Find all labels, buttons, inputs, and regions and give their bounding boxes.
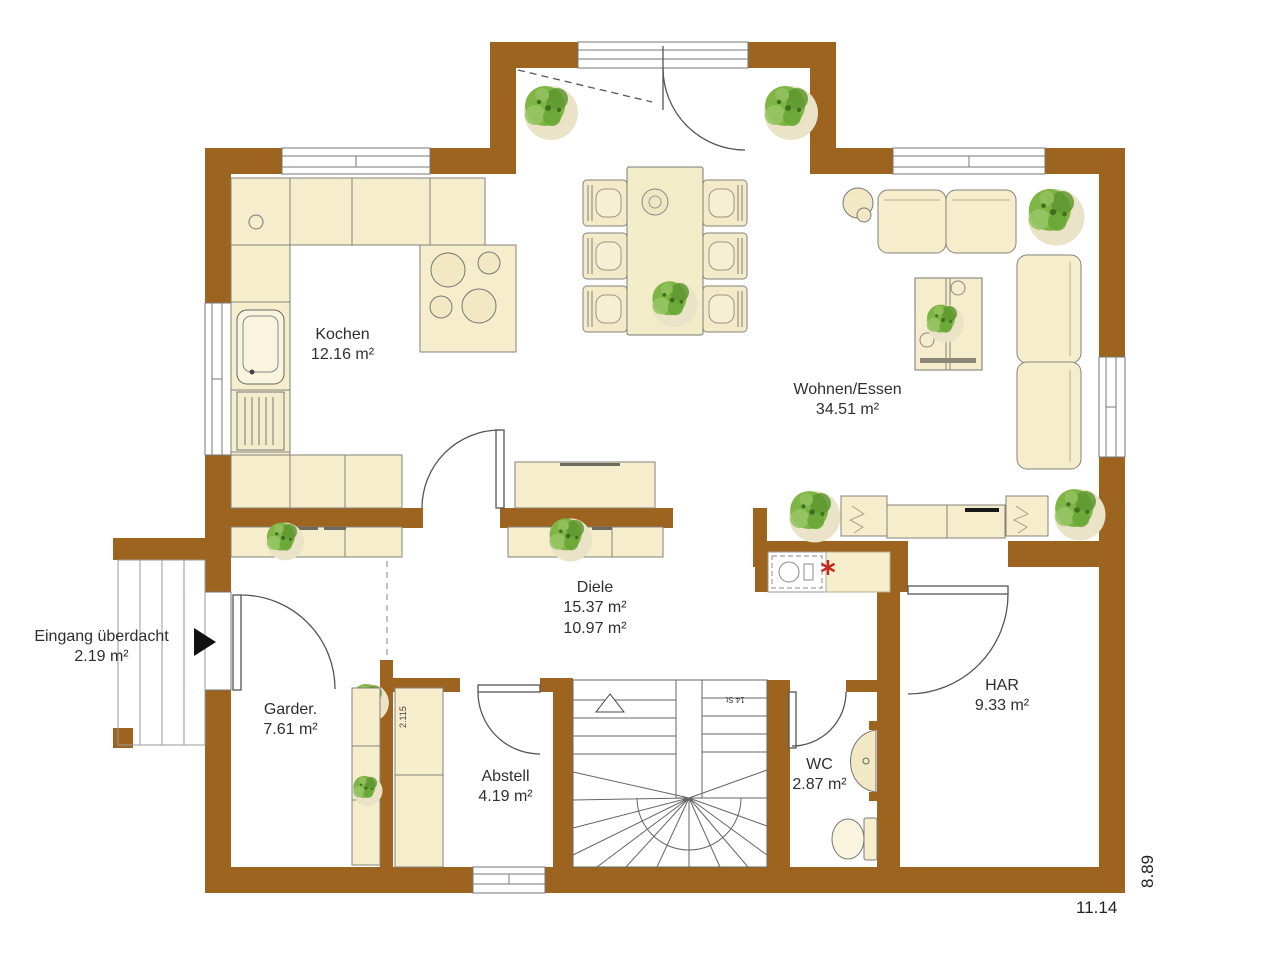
room-area-2: 10.97 m²	[540, 619, 650, 639]
window-bottom	[473, 867, 545, 893]
plant-icon	[926, 305, 964, 343]
plant-icon	[652, 281, 698, 327]
plant-icon	[1054, 489, 1105, 540]
tv-icon	[965, 508, 999, 512]
bowl-icon	[642, 189, 668, 215]
abstell-door	[478, 685, 540, 754]
room-area: 7.61 m²	[238, 720, 343, 740]
window-top-right	[893, 148, 1045, 174]
room-label-garderobe: Garder. 7.61 m²	[238, 700, 343, 741]
floorplan-page: Kochen 12.16 m² Wohnen/Essen 34.51 m² Di…	[0, 0, 1280, 960]
room-name: Kochen	[280, 325, 405, 345]
room-label-abstell: Abstell 4.19 m²	[448, 767, 563, 808]
room-name: Abstell	[448, 767, 563, 787]
room-label-eingang: Eingang überdacht 2.19 m²	[14, 627, 189, 668]
sofa-vertical	[1017, 255, 1081, 469]
utility-niche	[768, 552, 890, 592]
plant-icon	[353, 776, 383, 806]
room-name: Garder.	[238, 700, 343, 720]
room-label-kochen: Kochen 12.16 m²	[280, 325, 405, 366]
hall-sideboard	[231, 527, 402, 557]
kitchen-door	[422, 430, 504, 508]
window-right	[1099, 357, 1125, 457]
room-name: HAR	[952, 676, 1052, 696]
plant-icon	[549, 518, 592, 561]
dimension-width: 11.14	[1076, 898, 1117, 918]
dimension-depth: 8.89	[1138, 855, 1158, 888]
tv-lowboard	[841, 496, 1048, 538]
window-left	[205, 303, 231, 455]
entrance-door	[205, 592, 335, 690]
plant-icon	[266, 523, 304, 561]
room-area: 4.19 m²	[448, 787, 563, 807]
room-label-diele: Diele 15.37 m² 10.97 m²	[540, 578, 650, 639]
dish-drainer-icon	[237, 392, 284, 450]
plant-icon	[789, 491, 840, 542]
room-label-har: HAR 9.33 m²	[952, 676, 1052, 717]
room-name: Diele	[540, 578, 650, 598]
room-area: 12.16 m²	[280, 345, 405, 365]
kitchen-sink-icon	[237, 310, 284, 384]
plant-icon	[1028, 189, 1085, 246]
room-area: 15.37 m²	[540, 598, 650, 618]
room-area: 9.33 m²	[952, 696, 1052, 716]
room-name: Eingang überdacht	[14, 627, 189, 647]
room-area: 2.87 m²	[772, 775, 867, 795]
wc-door	[789, 692, 846, 748]
room-name: WC	[772, 755, 867, 775]
plant-icon	[764, 86, 818, 140]
room-area: 34.51 m²	[770, 400, 925, 420]
room-area: 2.19 m²	[14, 647, 189, 667]
room-label-wohnen-essen: Wohnen/Essen 34.51 m²	[770, 380, 925, 421]
toilet-icon	[832, 818, 877, 860]
room-label-wc: WC 2.87 m²	[772, 755, 867, 796]
staircase	[573, 680, 767, 867]
floorplan-graphic	[0, 0, 1280, 960]
sofa-horizontal	[878, 190, 1016, 253]
stair-steps-label: 14 St	[726, 695, 745, 704]
plant-icon	[524, 86, 578, 140]
room-name: Wohnen/Essen	[770, 380, 925, 400]
cabinet-depth-label: 2.115	[398, 706, 408, 728]
dining-sideboard	[515, 462, 655, 508]
window-top-left	[282, 148, 430, 174]
floor-lamp-icon	[843, 188, 873, 222]
